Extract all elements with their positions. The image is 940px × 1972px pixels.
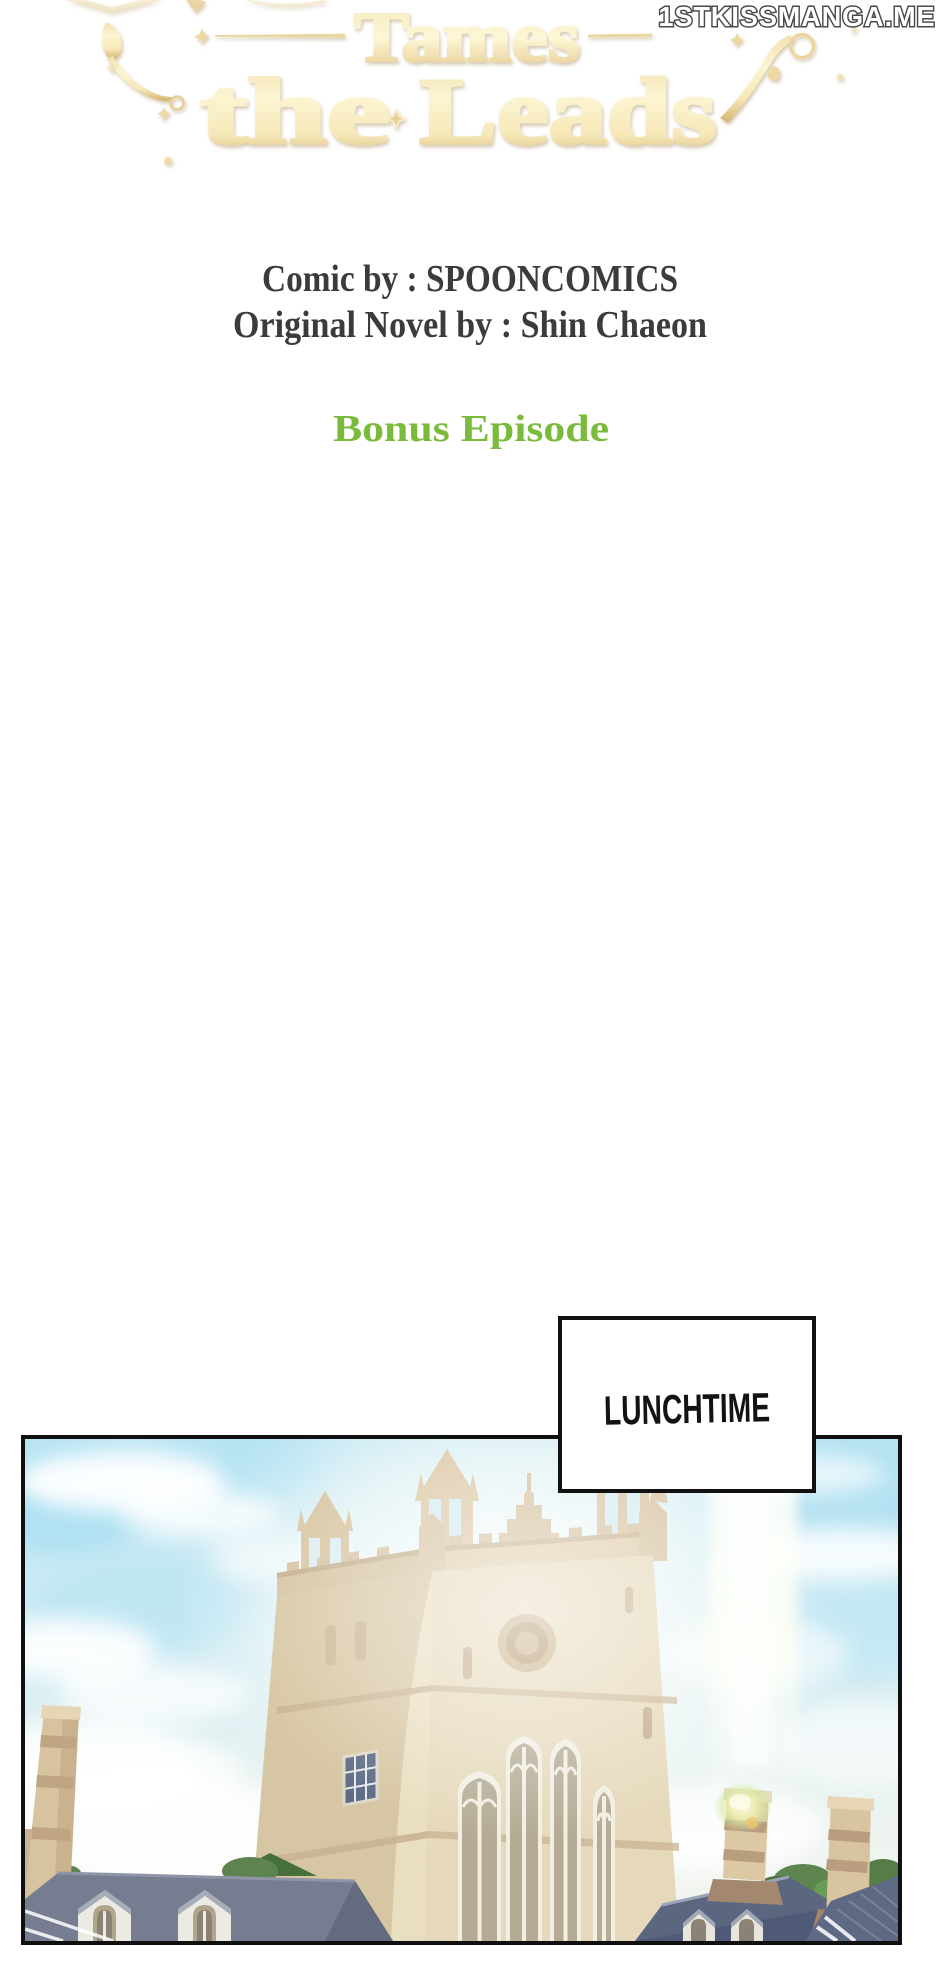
svg-text:LUNCHTIME: LUNCHTIME [604, 1384, 771, 1433]
svg-text:Leads: Leads [420, 60, 717, 164]
svg-text:the: the [200, 60, 390, 164]
svg-text:Bonus Episode: Bonus Episode [333, 408, 609, 450]
svg-text:Comic by : SPOONCOMICS: Comic by : SPOONCOMICS [262, 258, 678, 300]
svg-text:1STKISSMANGA.ME: 1STKISSMANGA.ME [659, 1, 936, 32]
svg-text:Original Novel by : Shin Chaeo: Original Novel by : Shin Chaeon [233, 304, 707, 346]
